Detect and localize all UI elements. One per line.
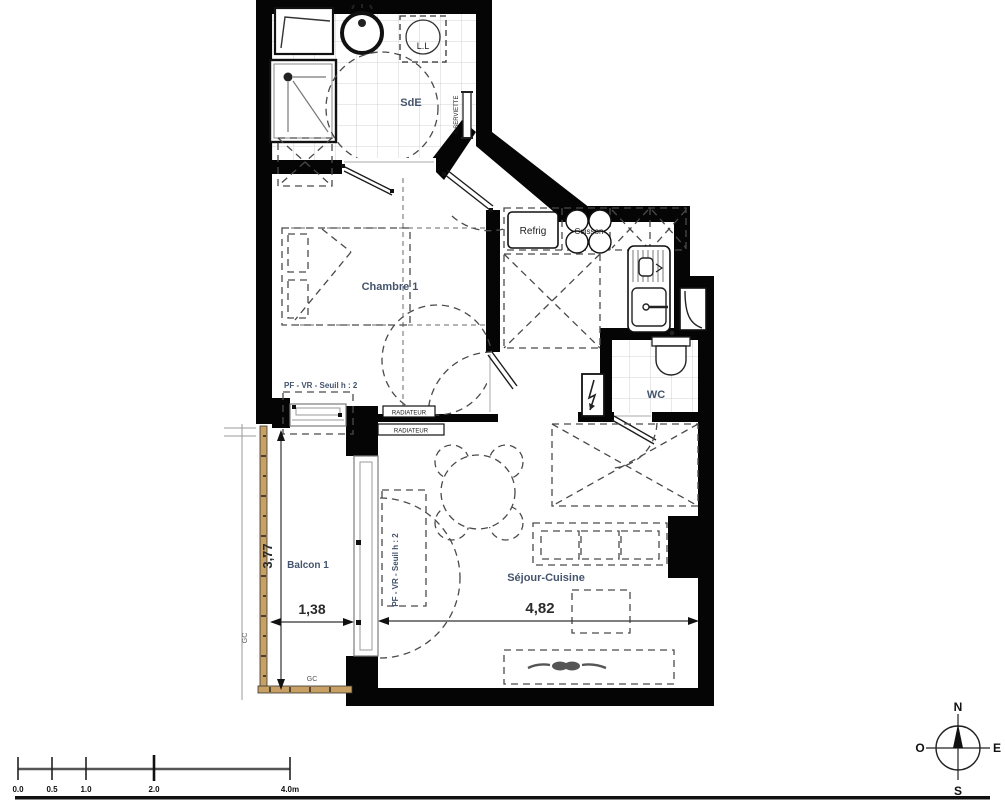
room-label-balcon: Balcon 1 [287, 560, 329, 571]
dim-label-482: 4,82 [525, 600, 554, 617]
scale-tick-1: 1.0 [80, 785, 92, 794]
sejour-window-dashed [382, 490, 426, 606]
guardrail-label-left: GC [242, 633, 249, 644]
towel-rail-label: S.SERVIETTE [454, 96, 460, 135]
scale-tick-0: 0.0 [12, 785, 24, 794]
radiator-bedroom-label: RADIATEUR [392, 411, 427, 417]
wall-right-pier [668, 516, 698, 578]
room-label-chambre: Chambre 1 [362, 281, 419, 293]
kitchen-sink-icon [628, 246, 670, 332]
bathroom-door-opening [342, 158, 436, 174]
wall-sejour-bottom [346, 688, 714, 706]
bed-dashed [282, 228, 410, 325]
room-label-sejour: Séjour-Cuisine [507, 572, 585, 584]
floor-plan-drawing: L.L S.SERVIETTE SdE [0, 0, 1005, 800]
technical-niche-icon [680, 288, 706, 330]
dim-label-377: 3,77 [260, 543, 275, 568]
compass-west-label: O [915, 741, 924, 755]
sheet-border-line [15, 796, 990, 800]
radiator-sejour-icon: RADIATEUR [378, 424, 444, 435]
dining-table-icon [435, 445, 523, 540]
fridge-icon: Refrig [508, 212, 558, 248]
dim-balcon-width: 1,38 [270, 601, 354, 626]
tv-console-icon [504, 650, 674, 684]
balcony-railing-bottom [258, 686, 352, 693]
scale-tick-2: 2.0 [148, 785, 160, 794]
room-label-wc: WC [647, 389, 665, 401]
dim-label-138: 1,38 [298, 601, 325, 617]
bedroom: Chambre 1 PF - VR - Seuil h : 2 [282, 228, 517, 434]
scale-tick-05: 0.5 [46, 785, 58, 794]
compass-north-label: N [954, 700, 963, 714]
guardrail-label-bottom: GC [307, 676, 318, 683]
compass-icon: N S E O [915, 700, 1001, 798]
sejour-window-label: PF - VR - Seuil h : 2 [391, 533, 400, 607]
bedroom-window [283, 392, 353, 434]
wall-right-upper [674, 206, 690, 276]
wall-window-stub-top [346, 406, 378, 456]
wall-chambre-window-stub [272, 398, 290, 428]
fridge-label: Refrig [520, 226, 547, 237]
wall-window-stub-bottom [346, 656, 378, 700]
wall-right-lower [698, 328, 714, 706]
room-label-sde: SdE [400, 97, 421, 109]
bedroom-door-arc [428, 352, 492, 414]
toilet-icon [652, 331, 690, 375]
compass-east-label: E [993, 741, 1001, 755]
living-room: Séjour-Cuisine [435, 424, 698, 684]
washing-machine-label: L.L [417, 41, 430, 51]
turning-circle-bedroom [382, 305, 492, 415]
hob-label: Cuisson [575, 227, 604, 236]
bedroom-door [428, 352, 517, 414]
wall-bathroom-right [476, 0, 492, 140]
scale-bar: 0.0 0.5 1.0 2.0 4.0m [12, 755, 299, 794]
storage-x-dashed [552, 424, 698, 506]
worktop-x-dashed [504, 254, 600, 348]
floor-plan-page: L.L S.SERVIETTE SdE [0, 0, 1005, 800]
wall-wc-bottom-right [652, 412, 714, 422]
towel-rail-icon [461, 92, 473, 138]
radiator-sejour-label: RADIATEUR [394, 429, 429, 435]
balcony: Balcon 1 GC GC [224, 424, 352, 700]
scale-tick-4: 4.0m [281, 785, 299, 794]
electrical-panel-icon [582, 374, 604, 416]
sofa-icon [533, 523, 667, 565]
radiator-bedroom-icon: RADIATEUR [383, 406, 435, 417]
structure-dashes [282, 178, 490, 414]
compass-south-label: S [954, 784, 962, 798]
bedroom-window-label: PF - VR - Seuil h : 2 [284, 381, 358, 390]
coffee-table-icon [572, 590, 630, 633]
